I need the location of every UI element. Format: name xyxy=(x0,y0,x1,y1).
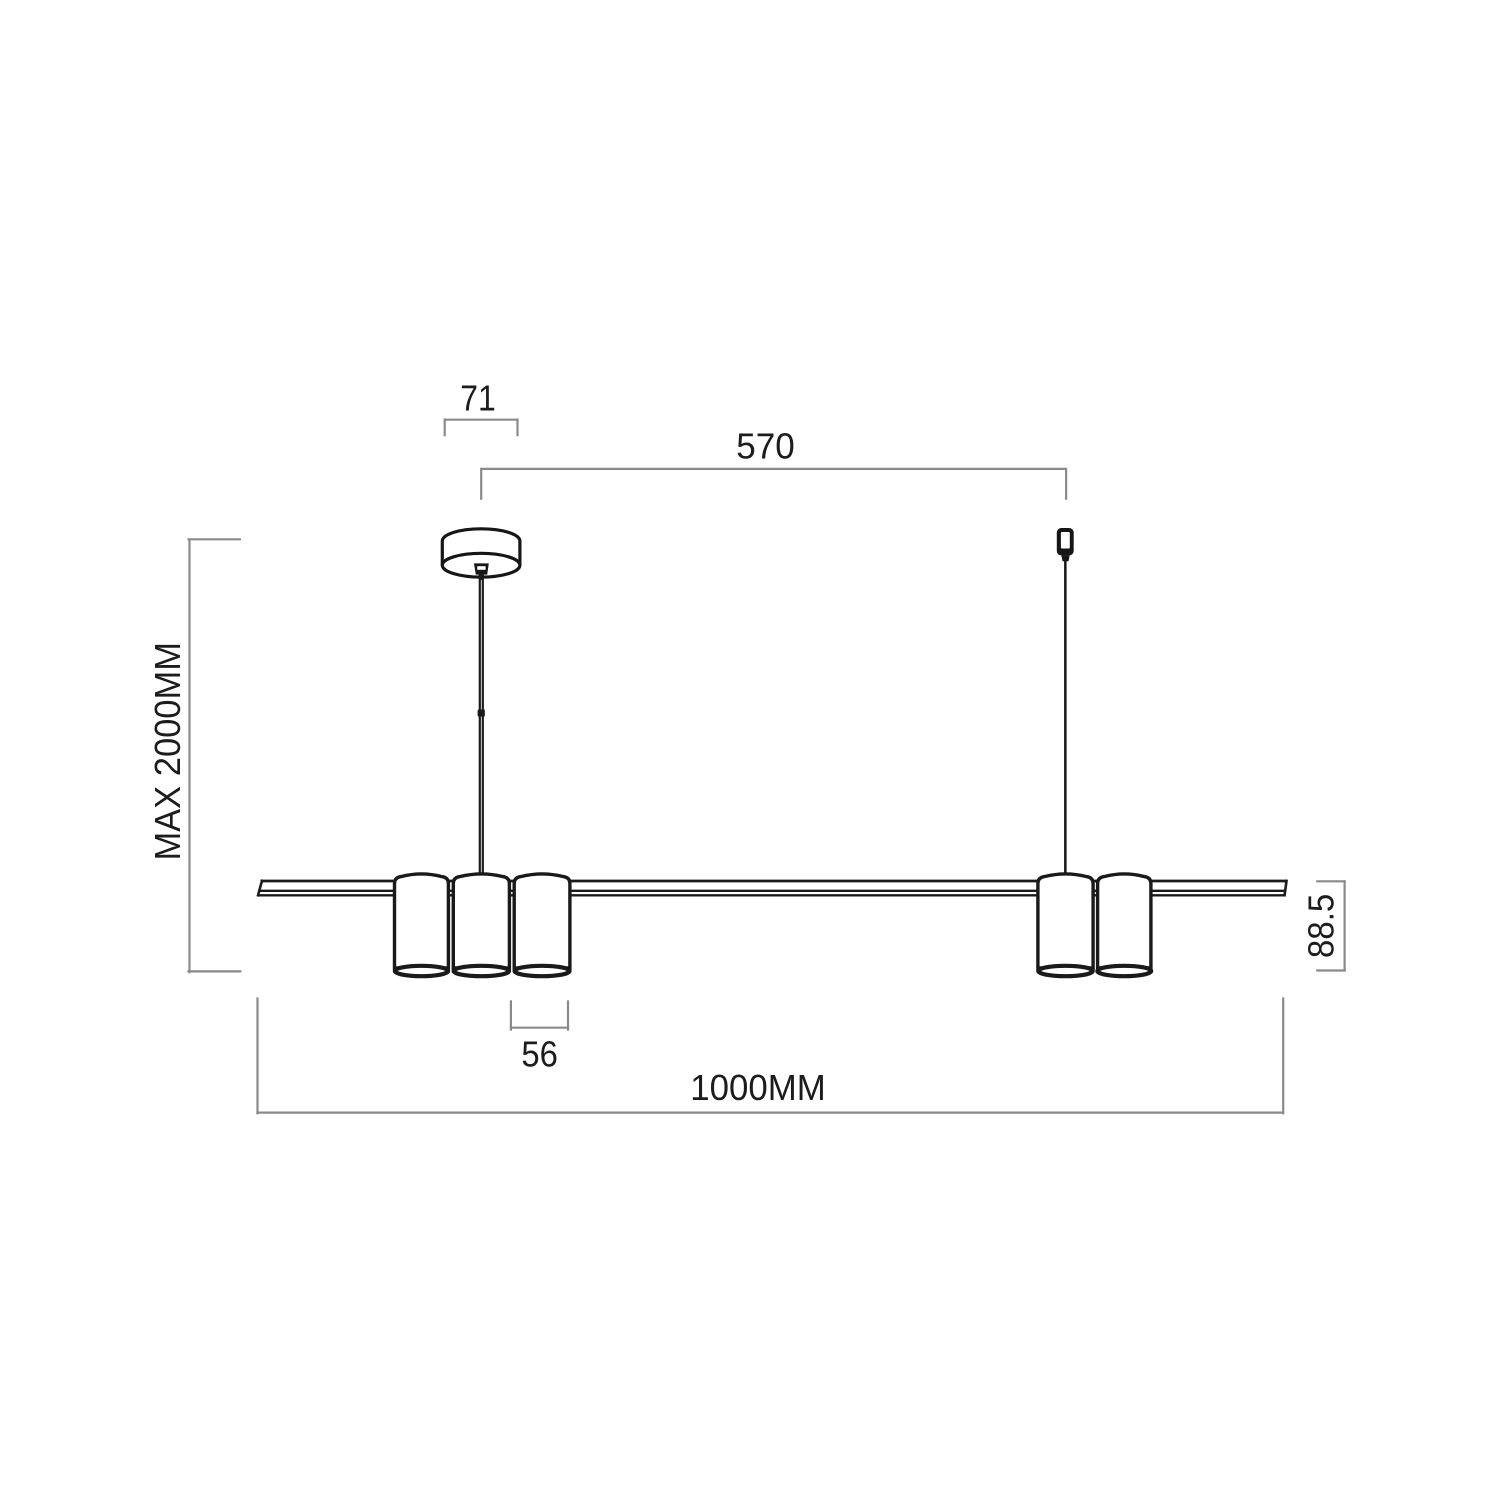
svg-text:1000MM: 1000MM xyxy=(690,1067,826,1108)
svg-text:88.5: 88.5 xyxy=(1301,894,1342,959)
svg-text:71: 71 xyxy=(460,378,496,419)
svg-text:56: 56 xyxy=(521,1033,558,1074)
svg-text:570: 570 xyxy=(736,426,795,467)
svg-text:MAX 2000MM: MAX 2000MM xyxy=(147,642,188,861)
